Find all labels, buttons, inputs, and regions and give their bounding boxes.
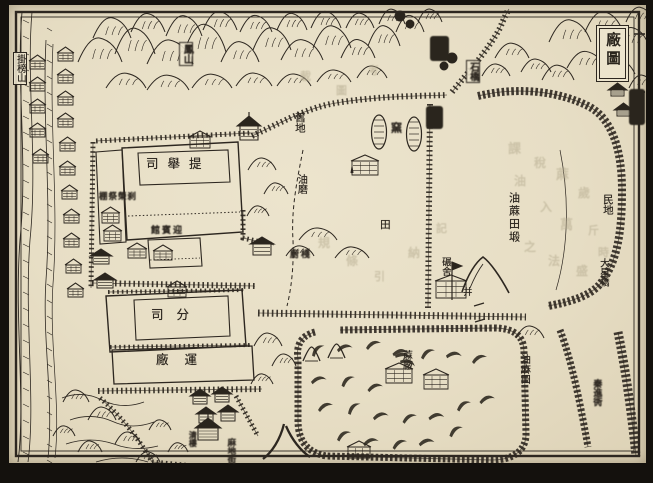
bleedthrough-char: 稅	[534, 154, 546, 171]
bleedthrough-char: 入	[540, 198, 552, 215]
bleedthrough-char: 納	[408, 244, 420, 261]
scanned-book-photo: 廠圖 掛榜山鳳山舊地油磨窯油蔴田塅碾舍井民地大星橋田蔴廠油麻田秦進衖麻地街清樓司…	[0, 0, 653, 483]
buildings	[29, 47, 633, 459]
river-left	[18, 12, 158, 463]
bleedthrough-char: 法	[548, 252, 560, 269]
bleedthrough-char: 蔴	[556, 164, 569, 183]
bleedthrough-char: 載	[300, 68, 311, 84]
bleedthrough-char: 萬	[560, 214, 573, 233]
label-daxing-bridge: 大星橋	[598, 258, 608, 287]
label-madi-street: 麻地街	[226, 438, 235, 464]
label-guabang-mountain: 掛榜山	[13, 52, 27, 85]
bleedthrough-char: 油	[514, 172, 526, 189]
label-tijusi-office: 司舉提	[146, 157, 211, 170]
label-old-land: 舊地	[294, 112, 305, 133]
label-roller-shed: 碾舍	[440, 257, 450, 276]
bleedthrough-char: 條	[346, 252, 358, 269]
label-sesame-field: 油麻田	[518, 354, 528, 384]
cartouche-top-road	[431, 37, 448, 60]
terrain	[53, 7, 646, 462]
bleedthrough-char: 斤	[588, 222, 599, 238]
label-bridge-cartouche: 石橋	[466, 60, 480, 83]
map-title-box: 廠圖	[596, 25, 629, 82]
label-civilian-land: 民地	[602, 194, 613, 215]
label-mountain-cartouche: 鳳山	[179, 42, 193, 66]
label-branch-office: 司分	[151, 308, 202, 321]
label-qinjin-lane: 秦進衖	[591, 379, 600, 406]
label-guest-hall: 館賓迎	[151, 227, 184, 236]
bleedthrough-char: 圖	[336, 82, 347, 98]
bleedthrough-char: 歲	[578, 184, 590, 201]
bleedthrough-char: 規	[318, 234, 330, 251]
bleedthrough-char: 之	[524, 238, 536, 255]
bleedthrough-char: 課	[508, 138, 521, 157]
label-well: 井	[461, 287, 470, 296]
label-kitchen-shed: 廚棧	[290, 251, 312, 260]
label-sesame-field-tract: 油蔴田塅	[508, 192, 519, 244]
cartouche-mid-road	[427, 107, 442, 128]
bleedthrough-char: 盛	[576, 262, 588, 279]
label-field: 田	[379, 219, 390, 230]
cartouche-northeast	[630, 90, 644, 124]
map-paper: 廠圖 掛榜山鳳山舊地油磨窯油蔴田塅碾舍井民地大星橋田蔴廠油麻田秦進衖麻地街清樓司…	[9, 5, 646, 463]
label-annex-temple: 棚祭榮刹	[99, 193, 137, 202]
map-frame	[16, 12, 645, 456]
bleedthrough-char: 引	[374, 268, 385, 284]
label-ferry-tower: 清樓	[189, 431, 197, 447]
map-title: 廠圖	[602, 32, 623, 69]
label-kiln: 窯	[390, 122, 401, 133]
bleedthrough-char: 考	[368, 62, 379, 78]
label-hemp-factory: 蔴廠	[400, 350, 410, 370]
label-oil-mill: 油磨	[295, 174, 305, 194]
label-transport-factory: 廠運	[156, 353, 213, 366]
bleedthrough-char: 記	[436, 220, 447, 236]
